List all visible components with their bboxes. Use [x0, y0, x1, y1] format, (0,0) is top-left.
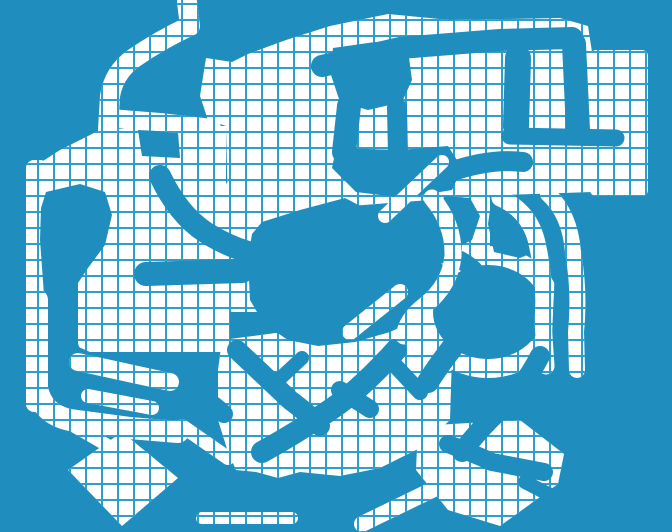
map-viewport — [0, 0, 672, 532]
dungeon-map — [0, 0, 672, 532]
grid-overlay-passages — [0, 0, 672, 532]
